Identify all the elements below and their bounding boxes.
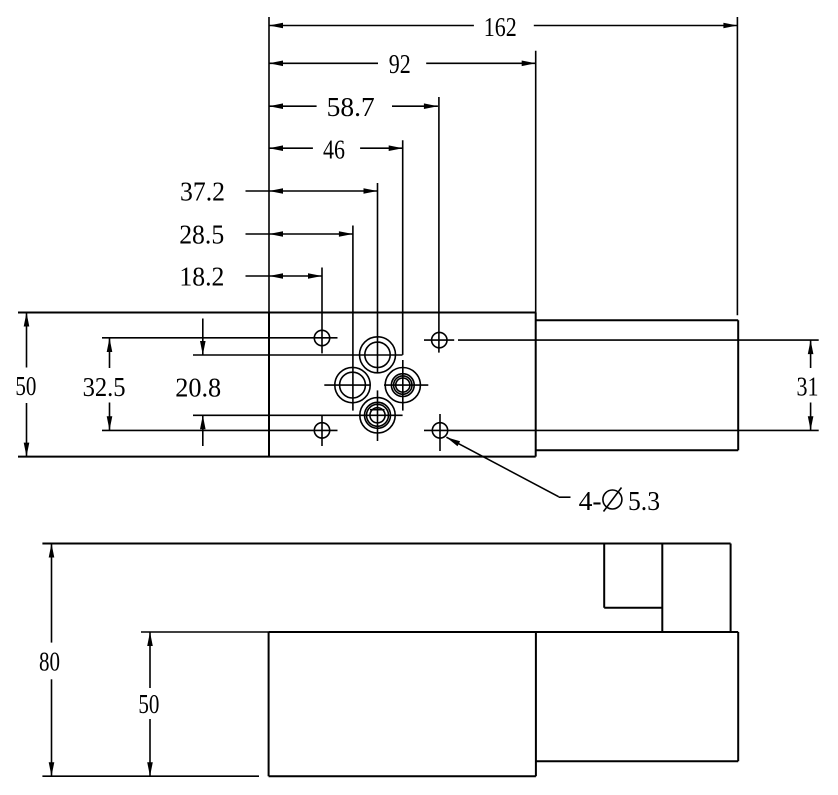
svg-text:37.2: 37.2 [180,176,225,206]
svg-text:58.7: 58.7 [327,92,375,122]
svg-text:28.5: 28.5 [179,220,224,250]
svg-text:5.3: 5.3 [628,486,660,516]
svg-text:4-: 4- [579,486,602,516]
svg-text:50: 50 [15,371,36,401]
svg-text:92: 92 [389,49,411,79]
svg-text:18.2: 18.2 [179,262,224,292]
svg-text:20.8: 20.8 [175,372,221,402]
svg-text:162: 162 [484,12,517,42]
svg-text:46: 46 [323,135,345,165]
svg-text:31: 31 [797,372,819,402]
svg-text:50: 50 [138,689,159,719]
svg-text:80: 80 [39,647,60,677]
svg-text:32.5: 32.5 [83,372,126,402]
